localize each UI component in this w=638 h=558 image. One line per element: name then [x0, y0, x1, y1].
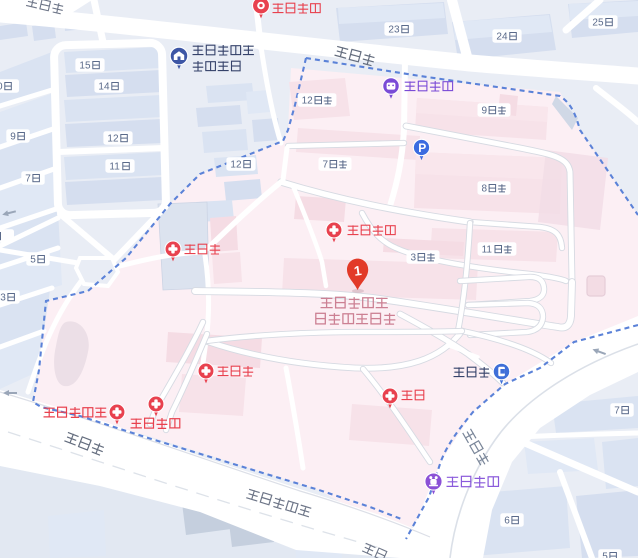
svg-text:7: 7 — [25, 174, 31, 185]
svg-text:10: 10 — [0, 82, 3, 93]
svg-text:3: 3 — [0, 293, 6, 304]
svg-text:3: 3 — [411, 253, 417, 264]
svg-text:12: 12 — [302, 96, 314, 107]
svg-text:12: 12 — [230, 160, 242, 171]
svg-text:5: 5 — [602, 552, 608, 558]
svg-text:11: 11 — [482, 245, 493, 256]
svg-text:9: 9 — [10, 132, 16, 143]
svg-text:5: 5 — [30, 255, 36, 266]
svg-text:25: 25 — [592, 18, 604, 29]
svg-text:8: 8 — [482, 184, 488, 195]
svg-text:7: 7 — [614, 406, 620, 417]
svg-text:7: 7 — [323, 160, 329, 171]
svg-text:6: 6 — [504, 516, 510, 527]
svg-text:9: 9 — [482, 106, 488, 117]
svg-text:24: 24 — [496, 32, 508, 43]
svg-text:P: P — [418, 141, 426, 155]
svg-text:14: 14 — [98, 82, 110, 93]
svg-text:11: 11 — [109, 162, 120, 173]
svg-text:15: 15 — [79, 61, 91, 72]
svg-text:23: 23 — [388, 25, 400, 36]
svg-text:12: 12 — [107, 134, 119, 145]
